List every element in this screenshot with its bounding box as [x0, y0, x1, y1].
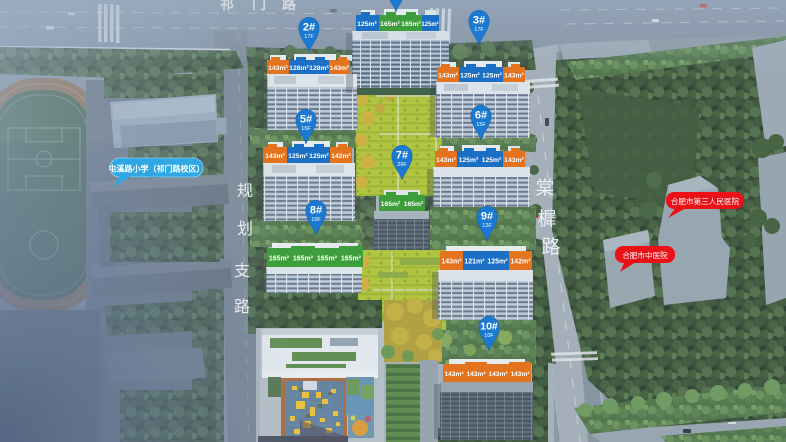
svg-text:路: 路 [282, 0, 297, 12]
svg-text:142m²: 142m² [510, 259, 531, 266]
svg-text:143m²: 143m² [265, 153, 285, 160]
svg-text:3#: 3# [473, 15, 485, 27]
svg-text:路: 路 [541, 236, 560, 258]
svg-text:15F: 15F [476, 122, 486, 128]
svg-text:7#: 7# [396, 150, 408, 162]
svg-text:6#: 6# [475, 110, 487, 122]
svg-text:祁: 祁 [220, 0, 234, 12]
svg-text:125m²: 125m² [459, 157, 479, 164]
svg-text:125m²: 125m² [421, 21, 438, 28]
svg-text:165m²: 165m² [269, 256, 290, 263]
svg-text:121m²: 121m² [464, 259, 485, 266]
svg-text:屯溪路小学（祁门路校区）: 屯溪路小学（祁门路校区） [109, 164, 205, 174]
svg-text:143m²: 143m² [510, 371, 530, 378]
svg-text:143m²: 143m² [441, 259, 462, 266]
svg-text:5#: 5# [300, 114, 312, 126]
svg-text:128m²: 128m² [289, 65, 309, 72]
svg-text:12F: 12F [482, 223, 492, 229]
svg-text:165m²: 165m² [293, 256, 314, 263]
svg-text:10#: 10# [480, 321, 498, 333]
svg-text:26F: 26F [397, 162, 407, 168]
svg-text:165m²: 165m² [380, 21, 400, 28]
svg-text:路: 路 [234, 298, 250, 316]
svg-text:143m²: 143m² [504, 73, 524, 80]
svg-text:143m²: 143m² [330, 65, 350, 72]
svg-text:10F: 10F [484, 333, 494, 339]
svg-text:支: 支 [234, 262, 250, 280]
svg-text:8#: 8# [310, 205, 322, 217]
svg-text:165m²: 165m² [381, 201, 401, 208]
svg-text:143m²: 143m² [438, 73, 458, 80]
svg-text:规: 规 [237, 182, 253, 200]
svg-text:125m²: 125m² [487, 259, 508, 266]
svg-text:17F: 17F [304, 34, 314, 40]
svg-text:合肥市中医院: 合肥市中医院 [622, 250, 668, 260]
svg-text:125m²: 125m² [357, 21, 377, 28]
svg-text:143m²: 143m² [444, 371, 464, 378]
svg-text:143m²: 143m² [436, 157, 456, 164]
svg-text:合肥市第三人民医院: 合肥市第三人民医院 [671, 196, 740, 206]
svg-text:划: 划 [237, 220, 253, 238]
svg-text:125m²: 125m² [288, 153, 308, 160]
svg-text:樨: 樨 [537, 208, 556, 230]
svg-text:10F: 10F [311, 217, 321, 223]
svg-text:125m²: 125m² [482, 157, 502, 164]
svg-text:165m²: 165m² [401, 21, 421, 28]
svg-text:棠: 棠 [535, 177, 554, 199]
svg-text:165m²: 165m² [317, 256, 338, 263]
svg-text:2#: 2# [303, 22, 315, 34]
svg-text:门: 门 [252, 0, 266, 12]
svg-text:125m²: 125m² [309, 153, 329, 160]
svg-text:128m²: 128m² [309, 65, 329, 72]
svg-text:165m²: 165m² [404, 201, 424, 208]
svg-text:143m²: 143m² [466, 371, 486, 378]
svg-text:143m²: 143m² [488, 371, 508, 378]
svg-text:17F: 17F [474, 27, 484, 33]
svg-text:15F: 15F [301, 126, 311, 132]
svg-text:142m²: 142m² [331, 153, 351, 160]
svg-text:143m²: 143m² [504, 157, 524, 164]
svg-text:125m²: 125m² [460, 73, 480, 80]
svg-text:125m²: 125m² [482, 73, 502, 80]
svg-text:9#: 9# [481, 211, 493, 223]
svg-text:165m²: 165m² [341, 256, 362, 263]
svg-text:143m²: 143m² [268, 65, 288, 72]
